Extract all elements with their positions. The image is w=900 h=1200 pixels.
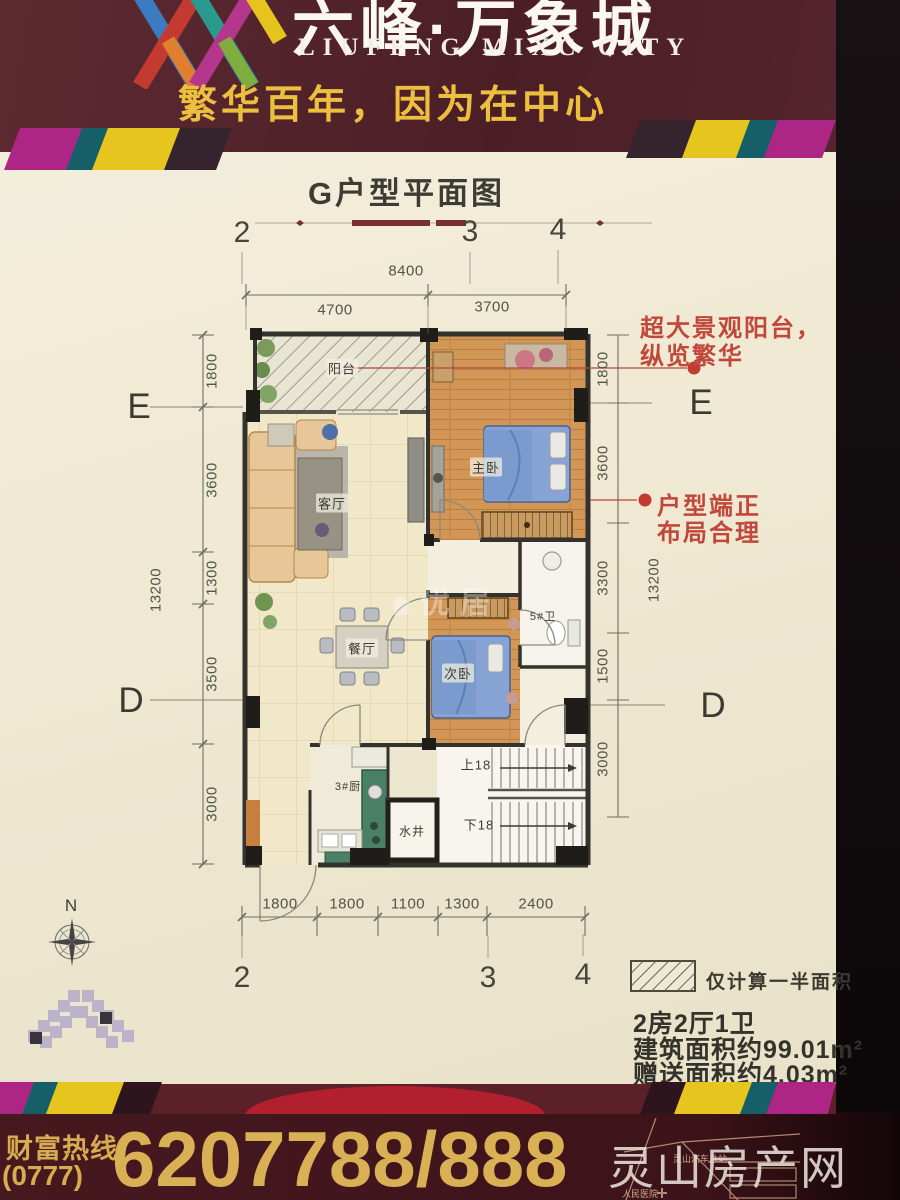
dim-right-seg3: 3300 (595, 560, 612, 595)
legend-hatch-swatch (631, 961, 695, 991)
grid-col-2-bottom: 2 (234, 961, 251, 995)
bottom-stripe-band (0, 1082, 836, 1114)
dim-top-total: 8400 (388, 263, 423, 280)
flyer-photo: 六峰·万象城 LIUFENG MIXC CITY 繁华百年，因为在中心 (0, 0, 900, 1200)
dim-left-seg3: 1300 (204, 560, 221, 595)
dim-bottom-seg4: 1300 (444, 896, 479, 913)
grid-col-3-bottom: 3 (480, 961, 497, 995)
dim-bottom-seg2: 1800 (329, 896, 364, 913)
grid-col-3-top: 3 (462, 215, 479, 249)
brand-subtitle: LIUFENG MIXC CITY (298, 34, 692, 62)
dim-bottom-seg1: 1800 (262, 896, 297, 913)
stairs-up-label: 上18 (459, 755, 493, 774)
dim-left-seg1: 1800 (204, 353, 221, 388)
grid-row-e-right: E (689, 383, 712, 423)
room-label-master: 主卧 (470, 458, 502, 477)
room-label-bath: 5#卫 (528, 608, 558, 624)
room-label-second: 次卧 (442, 664, 474, 683)
room-label-shaft: 水井 (397, 823, 427, 840)
stairs-down-label: 下18 (462, 815, 496, 834)
dim-top-seg1: 4700 (317, 302, 352, 319)
dim-right-seg4: 1500 (595, 648, 612, 683)
dim-right-seg2: 3600 (595, 445, 612, 480)
note-balcony-line2: 纵览繁华 (640, 336, 744, 371)
plan-watermark-text: 优居 (420, 587, 500, 620)
dim-left-total: 13200 (148, 568, 165, 612)
grid-col-2-top: 2 (234, 216, 251, 250)
hotline-phone: 6207788/888 (112, 1114, 567, 1200)
top-stripe-band (0, 118, 836, 174)
dim-right-seg5: 3000 (595, 741, 612, 776)
dim-left-seg4: 3500 (204, 656, 221, 691)
room-label-living: 客厅 (316, 494, 348, 513)
site-watermark: 灵山房产网 (608, 1132, 848, 1198)
compass-north-label: N (65, 896, 77, 916)
note-layout-line2: 布局合理 (657, 513, 761, 548)
plan-title: G户型平面图 (279, 168, 534, 213)
grid-row-d-right: D (700, 686, 725, 726)
dim-right-seg1: 1800 (595, 351, 612, 386)
dim-bottom-seg5: 2400 (518, 896, 553, 913)
hotline-area-code: (0777) (2, 1160, 83, 1192)
compass-icon (48, 918, 96, 966)
dim-bottom-seg3: 1100 (391, 896, 425, 913)
grid-row-e-left: E (127, 387, 150, 427)
dim-top-seg2: 3700 (474, 299, 509, 316)
grid-col-4-bottom: 4 (575, 958, 592, 992)
dim-left-seg2: 3600 (204, 462, 221, 497)
room-label-dining: 餐厅 (346, 639, 378, 658)
plan-watermark: 优居 (390, 578, 500, 622)
dim-right-total: 13200 (646, 558, 663, 602)
room-label-kitchen: 3#厨 (333, 778, 363, 794)
grid-col-4-top: 4 (550, 213, 567, 247)
dim-left-seg5: 3000 (204, 786, 221, 821)
grid-row-d-left: D (118, 681, 143, 721)
room-label-balcony: 阳台 (326, 359, 358, 378)
watermark-house-icon (390, 595, 412, 615)
pixel-logo (28, 990, 134, 1048)
legend-hatch-note: 仅计算一半面积 (706, 967, 853, 994)
